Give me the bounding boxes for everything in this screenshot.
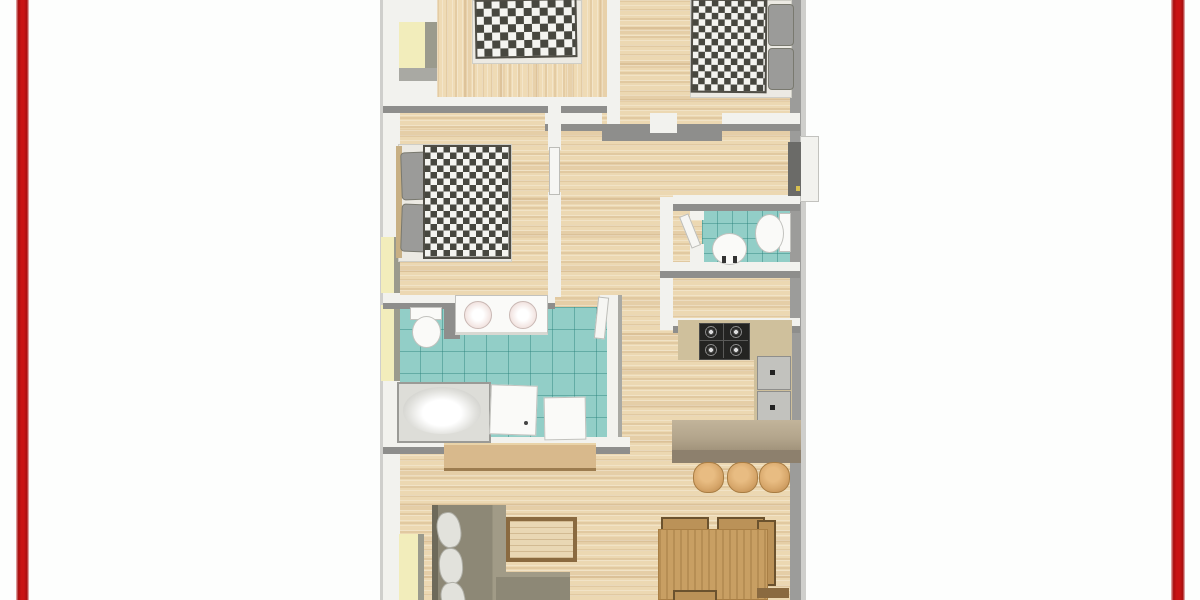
wall-shadow-10	[660, 271, 800, 278]
corner-sofa-bottom-section	[496, 572, 570, 600]
bedroom-middle-right-wall-a	[548, 106, 561, 150]
entry-door-handle	[796, 186, 800, 191]
entry-door-jamb	[800, 136, 819, 202]
bed-middle-left-checkered-duvet	[424, 146, 510, 258]
wall-shadow-7	[618, 295, 622, 452]
wall-bedrooms-top-left-bottom	[383, 97, 608, 106]
window-frame-top	[425, 22, 437, 68]
corridor-top-wall-b	[722, 113, 800, 124]
wc-top-wall	[673, 195, 800, 204]
coffee-table	[506, 517, 577, 562]
floor-plan-page	[0, 0, 1200, 600]
door-threshold-bedroom-right	[677, 124, 722, 141]
bar-stool-2	[727, 462, 758, 493]
door-threshold-bedroom-left	[602, 124, 650, 141]
wall-between-top-bedrooms	[607, 0, 620, 126]
sideboard	[444, 443, 596, 471]
corridor-top-wall-stub	[650, 113, 677, 133]
bar-stool-1	[693, 462, 724, 493]
wall-shadow-5	[722, 124, 800, 131]
dining-table-shadow	[757, 588, 789, 598]
wall-shadow-1	[383, 106, 608, 113]
bedroom-middle-right-wall-b	[548, 192, 561, 297]
stove-divider-v	[723, 323, 724, 358]
wc-wash-basin	[712, 233, 747, 265]
wall-shadow-9	[673, 204, 800, 211]
sink-drain-1	[770, 370, 775, 375]
breakfast-bar-top	[672, 420, 801, 450]
bed-top-right-pillow-1	[768, 4, 794, 46]
bathroom-toilet-bowl	[412, 316, 441, 348]
bathtub	[403, 387, 481, 434]
stove-burner-4	[727, 344, 745, 356]
breakfast-bar-front	[672, 450, 801, 463]
shower-drain	[524, 421, 528, 425]
sink-drain-2	[770, 405, 775, 410]
window-frame-bottom-left	[418, 534, 424, 600]
stove-burner-1	[702, 326, 720, 338]
wc-faucet-mark-2	[733, 256, 737, 263]
vanity-sink-1	[464, 301, 492, 329]
window-frame-left-2	[394, 305, 400, 381]
bar-stool-3	[759, 462, 790, 493]
dining-chair-4	[673, 590, 717, 600]
vanity-sink-2	[509, 301, 537, 329]
window-sill-top	[399, 22, 425, 68]
left-frame-bar	[16, 0, 29, 600]
right-wall-outer-edge	[801, 0, 806, 600]
bed-top-right-checkered-duvet	[692, 0, 767, 92]
wall-shadow-4	[650, 133, 677, 141]
stove-burner-3	[702, 344, 720, 356]
bedroom-middle-door-leaf	[549, 147, 560, 195]
wall-side-face-top	[399, 68, 437, 81]
shower-tray	[489, 384, 538, 436]
bed-top-right-pillow-2	[768, 48, 794, 90]
right-frame-bar	[1171, 0, 1185, 600]
wc-faucet-mark-1	[722, 256, 726, 263]
stove-burner-2	[727, 326, 745, 338]
appliance-box	[544, 397, 587, 441]
wc-toilet-bowl	[755, 214, 784, 253]
bed-top-left-checkered-duvet	[476, 0, 577, 58]
